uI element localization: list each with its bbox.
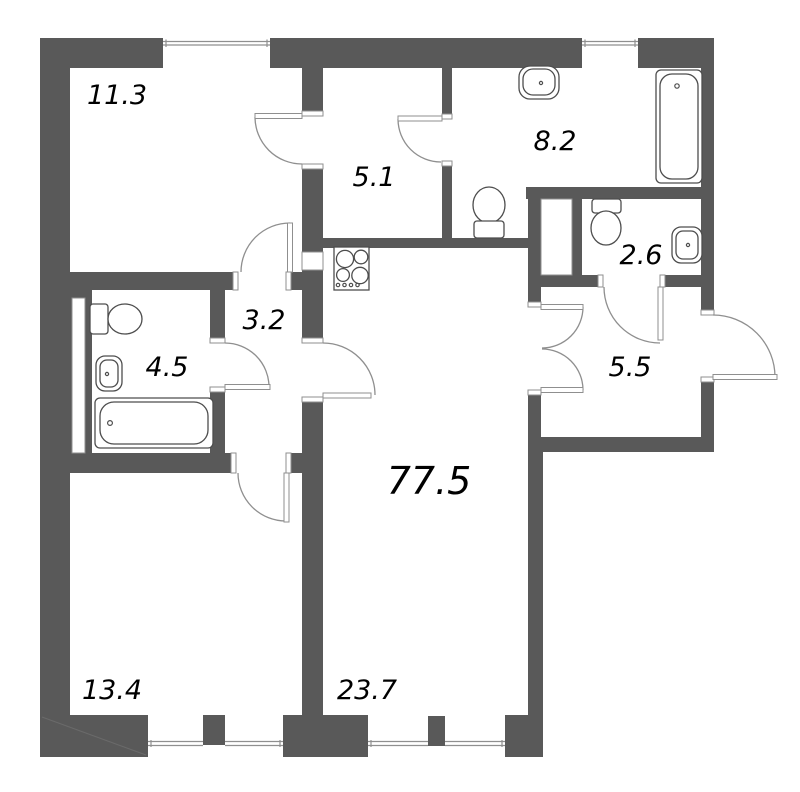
label-total-area: 77.5 [387, 459, 472, 503]
wall-central-seg2 [302, 165, 323, 252]
wall-bottom-pier-1 [203, 715, 225, 745]
wall-bottom-corner-right [505, 715, 543, 757]
wall-hall-left-lower [528, 390, 541, 437]
door-arc-icon-51-82 [398, 114, 452, 166]
wall-51-82-lower [442, 161, 452, 248]
wall-central-seg4 [302, 397, 323, 715]
wall-below-bedroom [40, 272, 238, 290]
label-entry-hall-area: 5.5 [609, 352, 652, 383]
wall-central-seg3 [302, 270, 323, 343]
toilet-icon-wc26 [591, 199, 621, 245]
wall-right-of-kitchen [528, 452, 543, 757]
door-arc-icon-living-hall-double [528, 302, 583, 395]
door-arc-icon-32-45 [210, 338, 270, 392]
label-bedroom-area: 11.3 [87, 80, 147, 111]
window-icon-bottom-3 [368, 716, 428, 747]
wall-bath45-right-upper [210, 290, 225, 343]
sink-icon-bath45 [96, 356, 122, 391]
window-icon-top-left [163, 38, 270, 68]
wall-bottom-pier-2 [428, 716, 445, 746]
label-wc-area: 2.6 [620, 240, 663, 271]
door-arc-icon-bedroom-51 [255, 111, 323, 169]
bathtub-icon-bath82 [656, 70, 702, 183]
wall-below-bedroom-stub [290, 272, 303, 290]
sink-icon-wc26 [672, 227, 702, 263]
label-inner-hall-area: 3.2 [243, 305, 286, 336]
window-icon-top-right [582, 38, 638, 68]
window-icon-bottom-2 [225, 715, 283, 747]
wall-step-bottom-right [528, 437, 714, 452]
toilet-icon-bath45 [90, 304, 142, 334]
wall-niche-central [302, 252, 323, 270]
wall-right-upper [701, 38, 714, 315]
label-walkthrough-area: 5.1 [353, 162, 396, 193]
label-bathroom-l-area: 8.2 [534, 126, 577, 157]
door-arc-icon-entry [701, 310, 777, 382]
door-arc-icon-32-living [302, 338, 375, 402]
bathtub-icon-bath45 [95, 398, 213, 448]
wall-above-134 [40, 453, 236, 473]
label-kitchen-area: 23.7 [337, 675, 397, 706]
window-icon-bottom-4 [445, 716, 505, 747]
window-icon-bottom-1 [148, 715, 203, 747]
door-arc-icon-32-134 [231, 453, 291, 522]
stove-icon [334, 247, 369, 290]
wall-top-middle [270, 38, 582, 68]
label-bathroom-s-area: 4.5 [146, 352, 189, 383]
wall-26-left [572, 199, 582, 275]
label-room-bl-area: 13.4 [82, 675, 142, 706]
wall-51-82-upper [442, 67, 452, 119]
wall-shaft-left [528, 199, 541, 287]
wall-central-seg1 [302, 67, 323, 116]
wall-left [40, 38, 70, 757]
wall-26-top [526, 187, 714, 199]
wall-26-bottom-right [660, 275, 714, 287]
sink-icon-bath82 [519, 66, 559, 99]
floor-plan: 11.3 5.1 8.2 2.6 3.2 4.5 5.5 77.5 13.4 2… [0, 0, 800, 792]
toilet-icon-bath82 [473, 187, 505, 238]
vent-shaft-right [541, 199, 572, 275]
fixtures [90, 66, 702, 448]
door-arc-icon-32-bedroom [233, 223, 293, 290]
wall-bottom-center [283, 715, 368, 757]
vent-shaft-left [72, 298, 85, 453]
wall-26-bottom-left [528, 275, 603, 287]
floor-plan-drawing: 11.3 5.1 8.2 2.6 3.2 4.5 5.5 77.5 13.4 2… [0, 0, 800, 792]
door-arc-icon-26-hall [598, 275, 665, 343]
